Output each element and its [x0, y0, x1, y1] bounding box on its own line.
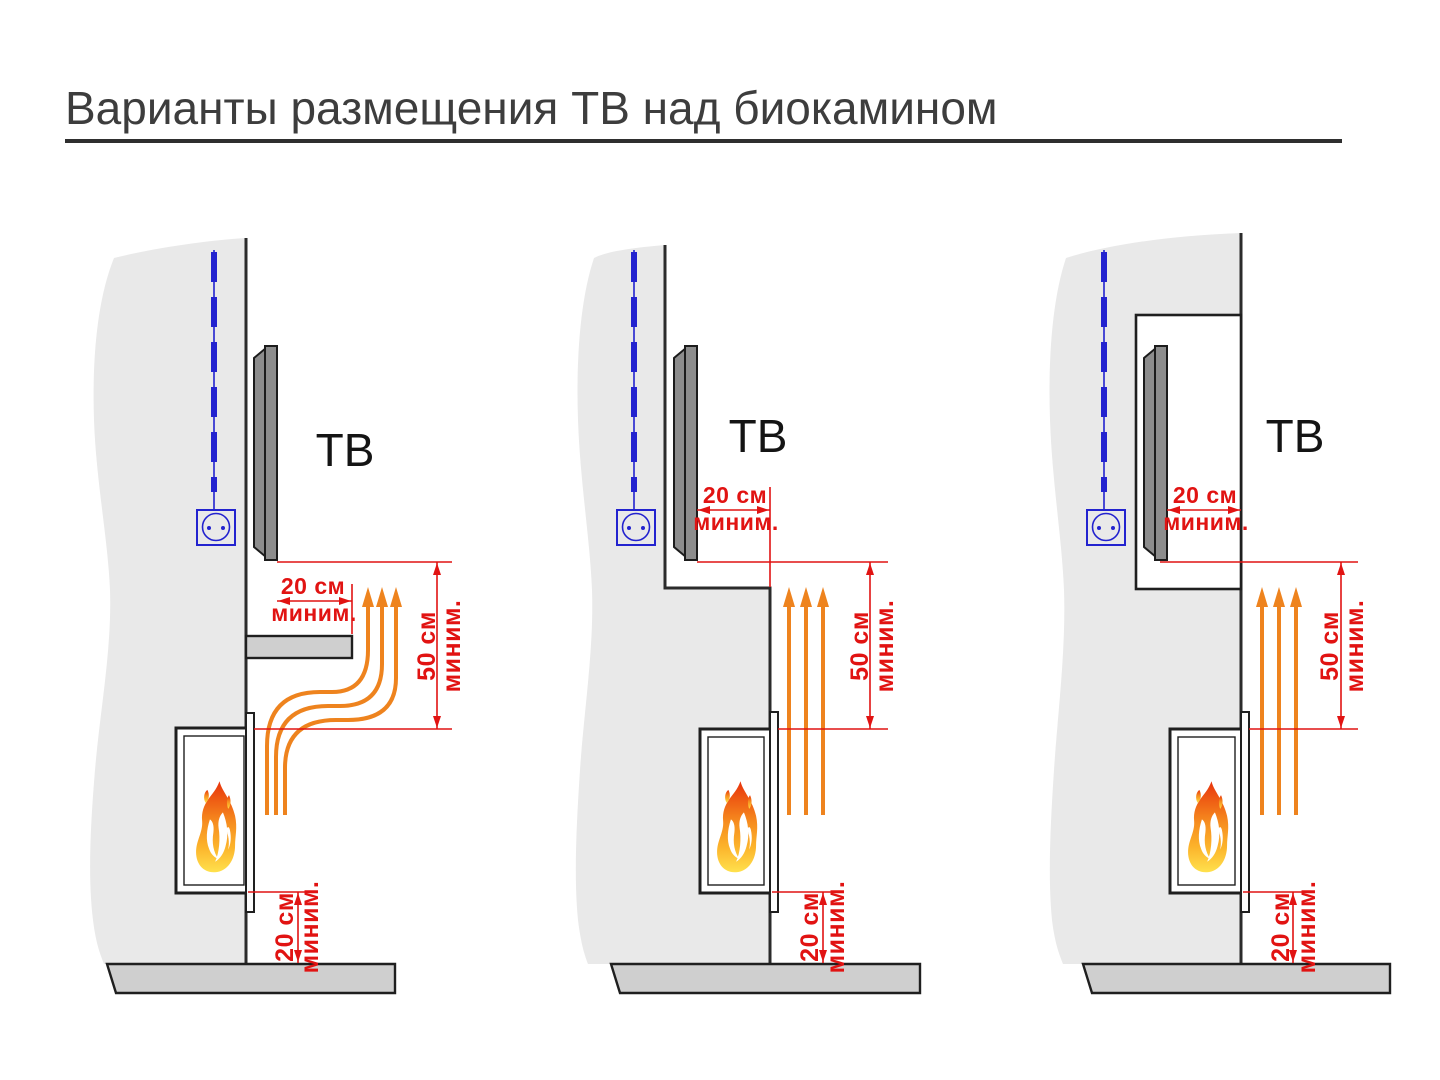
diagram-page: Варианты размещения ТВ над биокамином ТВ — [0, 0, 1440, 1080]
dimension-tv-setback: 20 см миним. — [693, 482, 779, 587]
dim-floor-value: 20 см — [1267, 892, 1295, 962]
dim-50cm-qualifier: миним. — [438, 600, 466, 693]
floor-slab — [611, 964, 920, 993]
tv-label: ТВ — [316, 424, 375, 476]
tv-side-view — [254, 346, 277, 560]
fireplace-front-frame — [770, 712, 778, 912]
tv-label: ТВ — [729, 410, 788, 462]
fireplace-front-frame — [1241, 712, 1249, 912]
dim-50cm-value: 50 см — [413, 611, 441, 681]
dim-20cm-value: 20 см — [1173, 482, 1237, 508]
dimension-fire-to-floor: 20 см миним. — [772, 881, 850, 974]
floor-slab — [107, 964, 395, 993]
panel-variant-2-wall-step: ТВ 20 см миним. — [576, 245, 920, 993]
dim-floor-value: 20 см — [796, 892, 824, 962]
panel-variant-3-niche: ТВ 20 см миним. — [1050, 233, 1390, 993]
dim-50cm-value: 50 см — [1316, 611, 1344, 681]
floor-slab — [1083, 964, 1390, 993]
power-socket-icon — [197, 510, 235, 545]
dim-50cm-value: 50 см — [846, 611, 874, 681]
panel-variant-1-shelf: ТВ 20 см миним. — [90, 238, 466, 993]
dimension-fire-to-floor: 20 см миним. — [1243, 881, 1321, 974]
dim-50cm-qualifier: миним. — [1341, 600, 1369, 693]
heat-flow-arrows — [783, 587, 829, 815]
dim-20cm-value: 20 см — [281, 573, 345, 599]
protective-shelf — [246, 636, 352, 658]
biofireplace — [700, 712, 778, 912]
power-socket-icon — [617, 510, 655, 545]
biofireplace — [176, 713, 254, 912]
dim-20cm-qualifier: миним. — [1163, 509, 1249, 535]
dim-floor-value: 20 см — [271, 892, 299, 962]
heat-flow-arrows — [1256, 587, 1302, 815]
dim-floor-qualifier: миним. — [822, 881, 850, 974]
dim-20cm-qualifier: миним. — [693, 509, 779, 535]
page-title: Варианты размещения ТВ над биокамином — [65, 82, 998, 134]
dim-floor-qualifier: миним. — [1293, 881, 1321, 974]
dim-floor-qualifier: миним. — [296, 881, 324, 974]
power-socket-icon — [1087, 510, 1125, 545]
dim-20cm-value: 20 см — [703, 482, 767, 508]
biofireplace — [1170, 712, 1249, 912]
dimension-fire-to-floor: 20 см миним. — [248, 881, 324, 974]
tv-label: ТВ — [1266, 410, 1325, 462]
tv-screen-icon — [265, 346, 277, 560]
fireplace-front-frame — [246, 713, 254, 912]
dim-20cm-qualifier: миним. — [271, 600, 357, 626]
dimension-tv-setback: 20 см миним. — [1163, 482, 1249, 535]
dim-50cm-qualifier: миним. — [871, 600, 899, 693]
